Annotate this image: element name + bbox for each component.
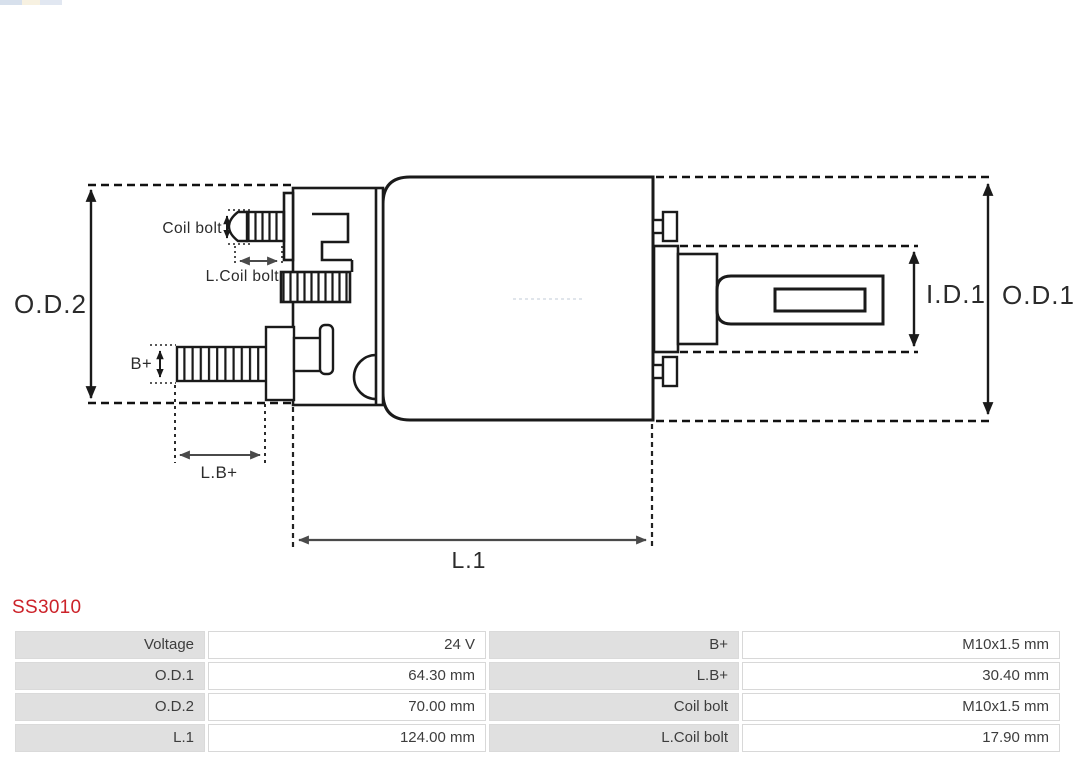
- spec-value-cell: M10x1.5 mm: [742, 631, 1060, 659]
- spec-value-cell: 70.00 mm: [208, 693, 486, 721]
- spec-label-cell: O.D.2: [15, 693, 205, 721]
- spec-table: Voltage 24 V B+ M10x1.5 mm O.D.1 64.30 m…: [12, 628, 1063, 755]
- spec-row: Voltage 24 V B+ M10x1.5 mm: [15, 631, 1060, 659]
- spec-value-cell: 124.00 mm: [208, 724, 486, 752]
- spec-label-cell: L.Coil bolt: [489, 724, 739, 752]
- id1-label: I.D.1: [926, 279, 986, 309]
- spec-label-cell: Voltage: [15, 631, 205, 659]
- solenoid-body: [383, 177, 653, 420]
- spec-label-cell: L.B+: [489, 662, 739, 690]
- spec-value-cell: 64.30 mm: [208, 662, 486, 690]
- spec-row: O.D.1 64.30 mm L.B+ 30.40 mm: [15, 662, 1060, 690]
- spec-label-cell: O.D.1: [15, 662, 205, 690]
- spec-row: O.D.2 70.00 mm Coil bolt M10x1.5 mm: [15, 693, 1060, 721]
- l-b-plus-label: L.B+: [200, 463, 237, 482]
- product-code: SS3010: [12, 597, 81, 619]
- solenoid-technical-drawing: O.D.2 O.D.1 I.D.1 Coil bolt L.Coil bolt …: [0, 0, 1080, 590]
- plunger-shaft: [654, 246, 883, 352]
- od2-label: O.D.2: [14, 289, 87, 319]
- spec-value-cell: 24 V: [208, 631, 486, 659]
- spec-value-cell: M10x1.5 mm: [742, 693, 1060, 721]
- l-coil-bolt-label: L.Coil bolt: [206, 268, 280, 285]
- od1-label: O.D.1: [1002, 280, 1075, 310]
- coil-bolt-terminal: [229, 212, 284, 241]
- spec-value-cell: 30.40 mm: [742, 662, 1060, 690]
- spec-label-cell: Coil bolt: [489, 693, 739, 721]
- spec-label-cell: B+: [489, 631, 739, 659]
- spec-row: L.1 124.00 mm L.Coil bolt 17.90 mm: [15, 724, 1060, 752]
- coil-bolt-label: Coil bolt: [162, 220, 222, 237]
- b-plus-label: B+: [131, 355, 152, 373]
- spec-value-cell: 17.90 mm: [742, 724, 1060, 752]
- l1-label: L.1: [452, 547, 487, 573]
- page: O.D.2 O.D.1 I.D.1 Coil bolt L.Coil bolt …: [0, 0, 1080, 767]
- spec-label-cell: L.1: [15, 724, 205, 752]
